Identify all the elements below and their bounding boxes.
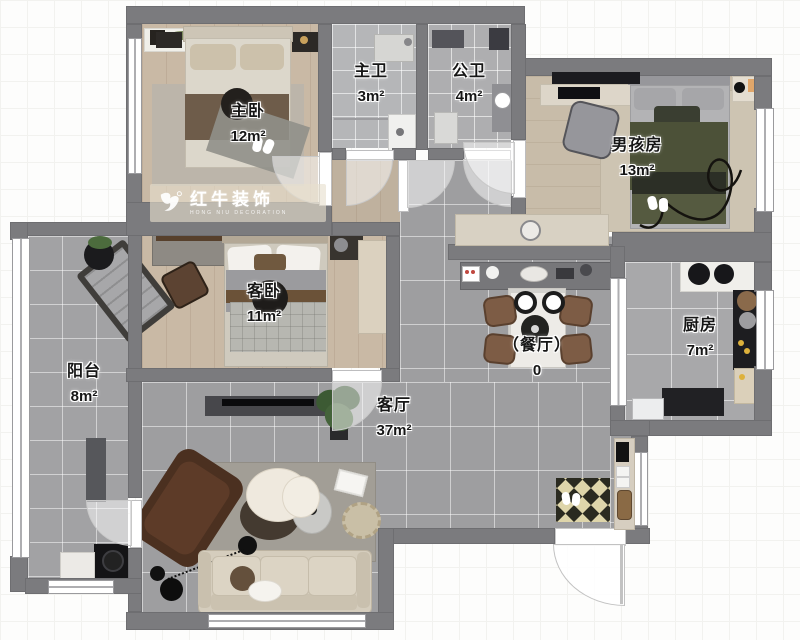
shower-head-icon [404,38,412,46]
guest-basket [334,238,348,252]
dining-room-area: 0 [503,363,571,378]
kitchen-sink-white [632,398,664,420]
kitchen-name: 厨房 [683,318,717,334]
wall-dining-top [448,244,612,260]
kitchen-sliding-door [610,278,627,406]
label-balcony: 阳台 8m² [67,364,101,404]
sideboard-dark-item [556,268,574,279]
label-public-bath: 公卫 4m² [452,64,486,104]
guest-brown-pillow [254,254,286,271]
label-kitchen: 厨房 7m² [683,318,717,358]
window-boys-right [756,108,774,212]
wall-boys-bottom [612,232,772,262]
wall-corridor-bottom [332,222,400,236]
brand-bull-logo-icon [158,190,184,216]
window-balcony-left [12,238,30,558]
boys-room-name: 男孩房 [611,138,662,154]
wall-top-right [511,58,772,76]
wall-guest-bottom-b [380,368,400,382]
wall-entrance-side [624,528,650,544]
master-bath-name: 主卫 [354,64,388,80]
public-bath-shower [489,28,509,50]
public-bath-area: 4m² [452,89,486,104]
boys-desk-shelf [552,72,640,84]
lemon-1 [738,340,744,346]
wall-entry-top [610,420,650,436]
balcony-area: 8m² [67,389,101,404]
sofa-seat-3 [308,556,357,596]
place-setting-1 [514,291,537,314]
lemon-2 [744,348,750,354]
public-bath-sink [494,92,511,109]
floor-lamp-base [160,578,183,601]
master-bedroom-name: 主卧 [230,104,265,120]
sideboard-pot [580,264,592,276]
wall-bath1-bottom-a [332,148,346,160]
window-kitchen-right [756,290,774,370]
floorplan-canvas: 红牛装饰 HONG NIU DECORATION 主卧 12m² 主卫 3m² … [0,0,800,640]
golf-bag [617,490,632,520]
label-boys-room: 男孩房 13m² [611,138,662,178]
boys-slipper-2 [659,198,668,212]
label-master-bath: 主卫 3m² [354,64,388,104]
balcony-name: 阳台 [67,364,101,380]
alcove-plate [520,220,541,241]
wall-balcony-top [25,222,128,236]
guest-desk-edge [156,236,222,241]
sofa-backrest [211,594,357,610]
sofa-arm-right [357,552,370,608]
wall-top [126,6,525,24]
kitchen-counter-bottom [662,388,724,416]
wall-bottom-mid [390,528,555,544]
cooker-2 [714,264,734,284]
kitchen-sink-round [739,312,756,329]
public-bath-mat [432,30,464,48]
wood-lid [737,291,757,311]
floor-lamp-shade [238,536,257,555]
cart-lemon [739,374,745,380]
white-shoes [616,466,630,477]
white-shoes-2 [616,477,630,488]
label-master-bedroom: 主卧 12m² [230,104,265,144]
brand-name: 红牛装饰 [190,191,287,208]
balcony-plant-leaves [88,236,112,249]
place-setting-2 [542,291,565,314]
boys-room-area: 13m² [611,163,662,178]
master-bed-pillow-right [240,44,284,70]
washer-door [102,550,124,572]
sink-faucet-icon [396,128,404,136]
window-entry-right [634,452,648,526]
guest-bedroom-area: 11m² [247,309,281,324]
wall-master-right-a [318,24,332,152]
wall-bath1-bottom-b [392,148,416,160]
nightstand-lamp [300,36,308,44]
label-dining-room: （餐厅） 0 [503,338,571,378]
master-bath-area: 3m² [354,89,388,104]
sofa-arm-left [198,552,211,608]
public-bath-cabinet [434,112,458,144]
living-room-name: 客厅 [376,398,411,414]
public-bath-name: 公卫 [452,64,486,80]
entrance-door-leaf [620,544,623,604]
label-living-room: 客厅 37m² [376,398,411,438]
dining-room-name: （餐厅） [503,338,571,354]
stove-dot-2 [471,270,475,274]
kitchen-area: 7m² [683,343,717,358]
window-bottom [208,614,366,628]
wall-kitchen-right-a [754,262,772,292]
wall-boys-left-a [511,24,526,140]
tv-screen [222,399,314,406]
wall-kitchen-bottom [648,420,772,436]
brand-subtitle: HONG NIU DECORATION [190,210,287,216]
sideboard-stove [462,266,480,282]
boys-monitor [558,87,600,99]
master-bedroom-area: 12m² [230,129,265,144]
master-nightstand-left [156,32,182,48]
brand-text-block: 红牛装饰 HONG NIU DECORATION [190,191,287,216]
entrance-door-arc [553,544,625,606]
centerpiece-dot [531,325,539,333]
floor-lamp-joint [150,566,165,581]
wall-balcony-right-a [128,222,142,498]
wall-guest-bottom-a [126,368,332,382]
guest-wardrobe [358,240,388,334]
rice-cooker [688,263,710,285]
black-boots [616,442,629,462]
sideboard-bowl [486,266,499,279]
coffee-table-cream-2 [282,476,320,518]
balcony-side-cabinet [86,438,106,502]
brand-watermark: 红牛装饰 HONG NIU DECORATION [150,184,326,222]
window-master-left [128,38,142,174]
wall-divider-top [610,246,625,278]
sideboard-platter [520,266,548,282]
wall-bath2-bottom [428,148,464,160]
boys-mic-lamp [734,82,745,93]
master-bed-pillow-left [190,44,236,70]
wall-bath-divider [416,24,428,150]
wall-right-upper-a [754,76,772,110]
dining-chair-1 [482,294,518,328]
jute-pouf [342,502,381,539]
window-balcony-bottom [48,580,114,594]
wall-guest-right [386,236,400,382]
label-guest-bedroom: 客卧 11m² [247,284,281,324]
guest-bedroom-name: 客卧 [247,284,281,300]
sofa-fluffy-pillow [248,580,282,602]
stove-dot-1 [465,270,469,274]
living-room-area: 37m² [376,423,411,438]
